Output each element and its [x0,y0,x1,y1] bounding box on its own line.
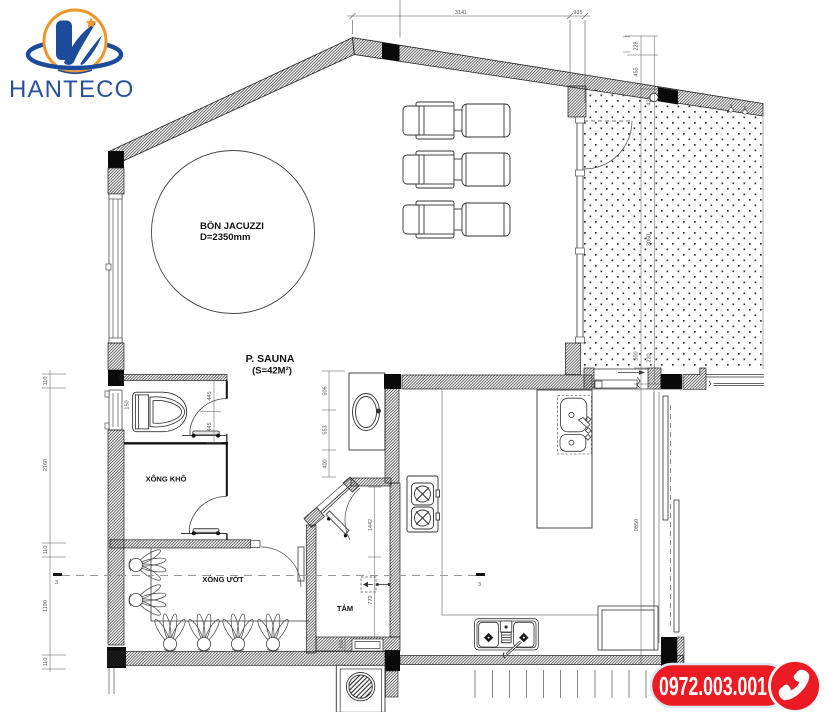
svg-text:445: 445 [207,422,213,431]
svg-text:400: 400 [323,459,329,468]
svg-text:BỒN JACUZZI: BỒN JACUZZI [200,220,264,232]
svg-text:D=2350mm: D=2350mm [200,232,250,243]
svg-text:3141: 3141 [455,10,467,16]
svg-text:455: 455 [634,67,640,76]
svg-text:228: 228 [634,41,640,50]
svg-text:445: 445 [207,391,213,400]
svg-text:421: 421 [647,96,653,105]
svg-text:3050: 3050 [647,234,653,246]
svg-text:772: 772 [368,595,374,604]
svg-text:220: 220 [647,353,653,362]
svg-text:3: 3 [478,582,481,588]
svg-text:110: 110 [43,658,49,667]
svg-text:P. SAUNA: P. SAUNA [246,353,295,365]
svg-text:HANTECO: HANTECO [9,76,136,103]
svg-text:506: 506 [323,386,329,395]
svg-text:935: 935 [573,10,582,16]
svg-text:2160: 2160 [43,459,49,471]
svg-text:TẮM: TẮM [337,604,353,613]
svg-text:0972.003.001: 0972.003.001 [659,671,767,701]
svg-text:110: 110 [43,546,49,555]
svg-text:9850: 9850 [634,519,640,531]
svg-text:500: 500 [634,351,640,360]
svg-text:XÔNG KHÔ: XÔNG KHÔ [146,475,187,484]
svg-text:XÔNG ƯỚT: XÔNG ƯỚT [202,575,244,584]
svg-text:100: 100 [339,639,345,648]
svg-text:150: 150 [125,400,131,409]
svg-text:1190: 1190 [43,600,49,612]
svg-text:(S=42M²): (S=42M²) [252,366,292,377]
svg-text:3: 3 [55,580,58,586]
svg-text:1442: 1442 [368,519,374,531]
svg-text:553: 553 [323,425,329,434]
svg-text:110: 110 [43,377,49,386]
